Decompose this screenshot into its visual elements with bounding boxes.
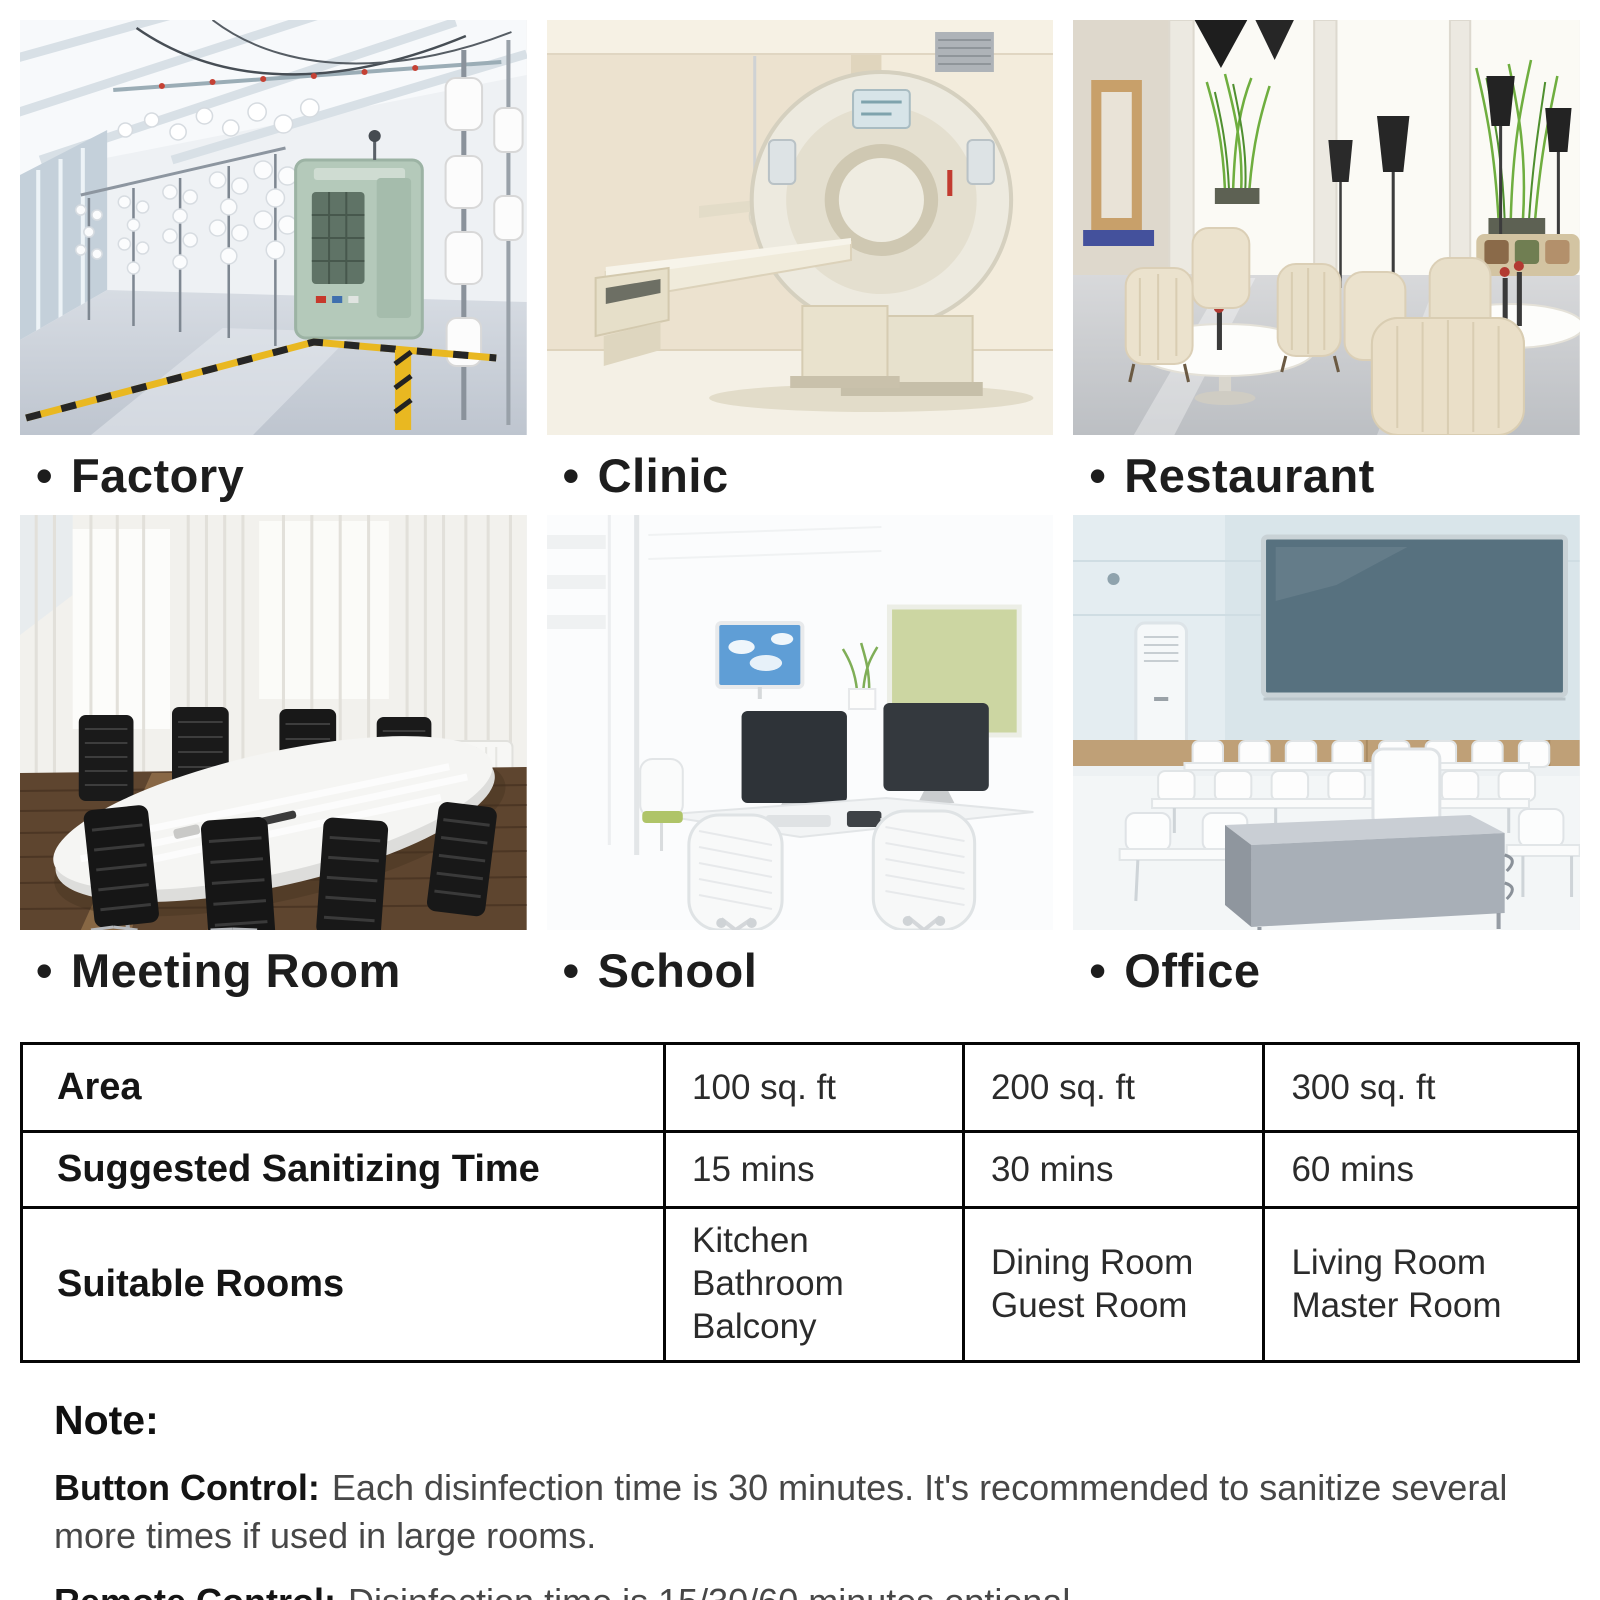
time-value-2: 30 mins (963, 1132, 1264, 1208)
school-photo-illustration (547, 515, 1054, 930)
note-title: Note: (54, 1397, 1570, 1444)
office-photo (1073, 515, 1580, 930)
rooms-value-3: Living Room Master Room (1264, 1208, 1579, 1362)
row-header-suitable-rooms: Suitable Rooms (22, 1208, 665, 1362)
specs-table: Area 100 sq. ft 200 sq. ft 300 sq. ft Su… (20, 1042, 1580, 1363)
gallery-item-factory: • Factory (20, 20, 527, 515)
caption-factory: • Factory (20, 435, 527, 515)
time-value-3: 60 mins (1264, 1132, 1579, 1208)
gallery-item-restaurant: • Restaurant (1073, 20, 1580, 515)
row-header-area: Area (22, 1044, 665, 1132)
student-chairs-row-mid (1158, 771, 1535, 801)
caption-label-factory: Factory (71, 448, 244, 503)
restaurant-photo-illustration (1073, 20, 1580, 435)
monitor (883, 703, 988, 791)
clinic-photo-illustration (547, 20, 1054, 435)
teacher-chair (1373, 749, 1440, 827)
meeting-room-photo-illustration (20, 515, 527, 930)
table-row-sanitizing-time: Suggested Sanitizing Time 15 mins 30 min… (22, 1132, 1579, 1208)
caption-restaurant: • Restaurant (1073, 435, 1580, 515)
gallery-item-office: • Office (1073, 515, 1580, 1010)
rooms-value-2: Dining Room Guest Room (963, 1208, 1264, 1362)
scene-gallery-row-1: • Factory (20, 20, 1580, 515)
area-value-1: 100 sq. ft (665, 1044, 964, 1132)
factory-photo-illustration (20, 20, 527, 435)
gallery-item-clinic: • Clinic (547, 20, 1054, 515)
teacher-desk (1225, 815, 1512, 930)
table-row-suitable-rooms: Suitable Rooms Kitchen Bathroom Balcony … (22, 1208, 1579, 1362)
sky-wallpaper-monitor (717, 623, 802, 699)
caption-label-restaurant: Restaurant (1124, 448, 1375, 503)
caption-label-office: Office (1124, 943, 1260, 998)
bullet-icon: • (36, 448, 53, 503)
mesh-chair (873, 811, 974, 930)
note-remote-control-text: Disinfection time is 15/30/60 minutes op… (348, 1581, 1080, 1600)
monitor (741, 711, 846, 803)
caption-label-meeting-room: Meeting Room (71, 943, 401, 998)
rooms-value-1: Kitchen Bathroom Balcony (665, 1208, 964, 1362)
note-button-control-label: Button Control: (54, 1467, 320, 1508)
school-photo (547, 515, 1054, 930)
caption-office: • Office (1073, 930, 1580, 1010)
caption-clinic: • Clinic (547, 435, 1054, 515)
caption-meeting-room: • Meeting Room (20, 930, 527, 1010)
note-button-control: Button Control:Each disinfection time is… (54, 1464, 1564, 1560)
time-value-1: 15 mins (665, 1132, 964, 1208)
knitting-machine (296, 130, 423, 338)
restaurant-photo (1073, 20, 1580, 435)
caption-label-school: School (598, 943, 758, 998)
caption-school: • School (547, 930, 1054, 1010)
note-section: Note: Button Control:Each disinfection t… (20, 1363, 1580, 1600)
writing-board (1264, 537, 1566, 699)
bullet-icon: • (1089, 943, 1106, 998)
note-remote-control: Remote Control:Disinfection time is 15/3… (54, 1578, 1564, 1600)
caption-label-clinic: Clinic (598, 448, 729, 503)
area-value-2: 200 sq. ft (963, 1044, 1264, 1132)
gallery-item-school: • School (547, 515, 1054, 1010)
meeting-room-photo (20, 515, 527, 930)
note-remote-control-label: Remote Control: (54, 1581, 336, 1600)
clinic-photo (547, 20, 1054, 435)
row-header-sanitizing-time: Suggested Sanitizing Time (22, 1132, 665, 1208)
table-row-area: Area 100 sq. ft 200 sq. ft 300 sq. ft (22, 1044, 1579, 1132)
bullet-icon: • (1089, 448, 1106, 503)
bullet-icon: • (563, 448, 580, 503)
office-photo-illustration (1073, 515, 1580, 930)
product-infographic: • Factory (0, 0, 1600, 1600)
factory-photo (20, 20, 527, 435)
area-value-3: 300 sq. ft (1264, 1044, 1579, 1132)
bullet-icon: • (563, 943, 580, 998)
gallery-item-meeting-room: • Meeting Room (20, 515, 527, 1010)
bullet-icon: • (36, 943, 53, 998)
scene-gallery-row-2: • Meeting Room (20, 515, 1580, 1010)
mesh-chair (689, 815, 782, 930)
